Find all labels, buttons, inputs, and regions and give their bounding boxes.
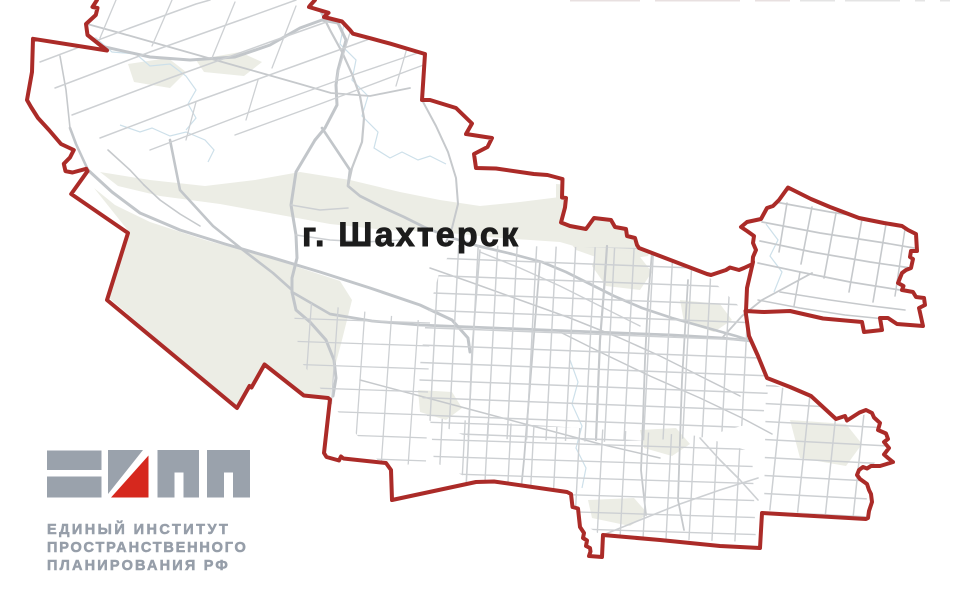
svg-text:ПЛАНИРОВАНИЯ РФ: ПЛАНИРОВАНИЯ РФ <box>47 558 229 574</box>
svg-text:г. Шахтерск: г. Шахтерск <box>302 216 519 254</box>
svg-text:ПРОСТРАНСТВЕННОГО: ПРОСТРАНСТВЕННОГО <box>47 540 247 556</box>
svg-text:ЕДИНЫЙ ИНСТИТУТ: ЕДИНЫЙ ИНСТИТУТ <box>47 520 229 538</box>
